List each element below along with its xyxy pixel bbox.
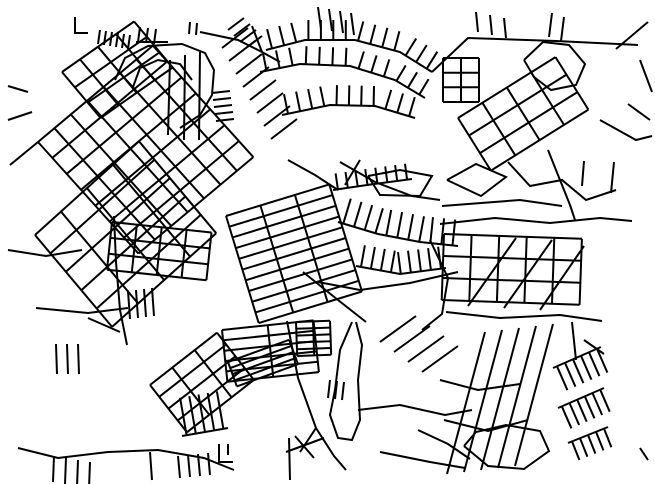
- grid-bc-rungs: [297, 341, 331, 342]
- grid-mr-blocks: [469, 235, 471, 301]
- comb-fan-top-2-tick: [371, 55, 376, 72]
- path-br-v: [572, 322, 576, 360]
- ticks-top-b: [138, 27, 140, 42]
- path-mr-v1: [582, 161, 584, 186]
- path-mr-lower-road: [446, 312, 602, 321]
- grid-bc-rungs: [297, 348, 331, 349]
- grid-w-lower: [87, 188, 164, 280]
- path-br-loop: [464, 425, 549, 469]
- comb-fan-top-3-tick: [296, 92, 300, 112]
- comb-fan-top-1-tick: [291, 23, 296, 42]
- grid-mr-blocks: [524, 237, 526, 303]
- ticks-bl-comb: [78, 344, 79, 374]
- path-park-road: [303, 272, 366, 322]
- grid-bc-ladder: [222, 330, 227, 382]
- ticks-nw-edgeband: [250, 80, 276, 100]
- ticks-tr-b: [549, 13, 552, 37]
- ticks-nw-edgeband: [243, 67, 269, 87]
- ticks-bl-bottom: [188, 455, 190, 477]
- grid-nw-upper: [80, 59, 119, 105]
- grid-nw-main: [104, 87, 204, 198]
- path-v-street-3: [199, 52, 200, 140]
- grid-bc-rungs: [330, 321, 331, 355]
- comb-fan-mid-1-tick: [419, 216, 424, 242]
- ticks-tm: [329, 9, 332, 31]
- path-l-road-1: [8, 250, 82, 256]
- street-map-svg: [0, 0, 655, 484]
- grid-nw-main: [67, 77, 182, 173]
- comb-br-1-tick: [573, 359, 583, 383]
- comb-fan-top-2-tick: [359, 52, 364, 69]
- comb-fan-top-3-tick: [320, 87, 324, 107]
- ticks-bl-branches: [89, 462, 90, 484]
- grid-central-ladder: [295, 195, 328, 302]
- grid-mr-blocks: [444, 234, 582, 239]
- ticks-ml-comb: [128, 291, 130, 319]
- path-L-mark: [75, 17, 88, 33]
- path-tr-edge-3: [600, 120, 652, 140]
- comb-fan-top-1-tick: [382, 28, 387, 47]
- grid-w-lower: [61, 212, 138, 304]
- comb-fan-top-2-tick: [319, 47, 320, 65]
- comb-fan-mid-1-tick: [430, 217, 433, 243]
- ticks-nw-diagband: [228, 18, 244, 30]
- comb-fan-top-3-tick: [397, 94, 403, 113]
- comb-fan-top-2-tick: [306, 46, 307, 64]
- ticks-tr-a: [476, 12, 478, 32]
- grid-w-lower: [35, 235, 112, 327]
- ticks-br-steep: [447, 332, 485, 474]
- path-bl-v: [150, 452, 152, 480]
- comb-br-1-tick: [557, 366, 567, 390]
- ticks-tm: [351, 13, 354, 35]
- path-l-edge-1: [8, 112, 32, 120]
- comb-br-2-tick: [570, 403, 580, 425]
- ticks-bl-branches: [53, 456, 54, 482]
- ticks-top-a: [104, 31, 106, 45]
- path-bc-x1: [286, 438, 324, 452]
- comb-fan-upper-tick: [336, 173, 338, 189]
- comb-fan-top-3: [282, 105, 415, 118]
- comb-fan-top-3-tick: [308, 89, 312, 109]
- ticks-top-c: [189, 22, 190, 34]
- grid-nw-main: [124, 141, 239, 237]
- ticks-tr-b: [561, 17, 564, 41]
- path-tr-edge-1: [640, 60, 652, 92]
- grid-bc-rungs: [313, 321, 314, 355]
- comb-fan-mid-1-tick: [354, 202, 362, 227]
- comb-fan-top-2-tick: [408, 72, 417, 87]
- comb-fan-top-3-tick: [385, 90, 391, 109]
- grid-central-ladder: [260, 206, 293, 313]
- ticks-nw-rungs: [214, 105, 232, 107]
- ticks-nw-diagband: [234, 24, 250, 36]
- ticks-bc-diags: [394, 326, 430, 352]
- grid-bc-rungs: [296, 321, 330, 322]
- ticks-ml-comb: [144, 289, 146, 317]
- comb-fan-top-1-tick: [358, 22, 363, 41]
- ticks-bl-bottom: [178, 456, 180, 478]
- comb-br-1-tick: [581, 356, 591, 380]
- comb-fan-top-2-tick: [332, 47, 333, 65]
- comb-fan-upper-tick: [395, 165, 397, 181]
- path-l-edge-3: [10, 142, 38, 165]
- ticks-tm: [318, 7, 321, 29]
- comb-fan-top-1-tick: [370, 25, 375, 44]
- comb-fan-mid-2-tick: [361, 245, 365, 267]
- path-mr-arterial: [440, 218, 632, 224]
- path-bc-balloon: [330, 322, 362, 440]
- grid-w-blocks: [182, 230, 187, 278]
- ticks-nw-rungs: [213, 98, 231, 100]
- comb-fan-top-2-tick: [289, 48, 293, 66]
- comb-fan-top-2-tick: [419, 79, 428, 95]
- comb-fan-mid-1-tick: [386, 210, 391, 236]
- ticks-top-c: [196, 23, 197, 35]
- path-mr-vconn: [548, 150, 575, 220]
- comb-fan-mid-2-tick: [428, 248, 431, 270]
- ticks-br-steep: [481, 328, 519, 470]
- ticks-bl-branches: [65, 458, 66, 484]
- comb-fan-mid-2-tick: [398, 252, 401, 274]
- ticks-bl-comb: [56, 344, 57, 374]
- ticks-ml-comb: [136, 290, 138, 318]
- grid-nw-main: [71, 115, 171, 226]
- path-mr-upper: [508, 162, 616, 200]
- ticks-nw-edgeband: [271, 119, 297, 139]
- path-tr-edge-2: [628, 104, 650, 120]
- ticks-top-a: [128, 35, 130, 49]
- ticks-tr-a: [504, 18, 506, 38]
- comb-fan-top-2: [260, 64, 425, 98]
- grid-mr-blocks: [443, 256, 581, 261]
- path-bc-curve-3: [418, 430, 470, 459]
- comb-bl-wavy-tick: [180, 398, 187, 435]
- comb-br-2-tick: [600, 390, 610, 412]
- comb-br-1-tick: [565, 363, 575, 387]
- comb-br-2-tick: [577, 400, 587, 422]
- ticks-ml-comb: [152, 288, 154, 316]
- comb-fan-top-2-tick: [384, 59, 389, 76]
- grid-central-ladder: [226, 216, 259, 323]
- path-bc-bracket: [219, 444, 233, 462]
- comb-br-2-tick: [585, 396, 595, 418]
- ticks-bl-bottom: [208, 453, 210, 475]
- grid-mr-blocks: [552, 238, 554, 304]
- comb-fan-top-1-tick: [394, 31, 399, 50]
- ticks-bl-branches: [77, 460, 78, 484]
- path-br-corner: [640, 448, 648, 460]
- ticks-bl-comb: [67, 344, 68, 374]
- path-mr-diag-1: [468, 238, 516, 306]
- ticks-nw-edgeband: [264, 106, 290, 126]
- comb-fan-mid-1-tick: [365, 205, 373, 230]
- ticks-top-a: [98, 30, 100, 44]
- path-bl-arterial: [18, 448, 234, 470]
- comb-fan-top-1-tick: [416, 45, 427, 62]
- grid-central-ladder: [329, 184, 362, 291]
- ticks-br-steep: [498, 326, 536, 468]
- comb-fan-top-1-tick: [406, 39, 417, 56]
- ticks-bc-ladder: [328, 380, 330, 398]
- comb-br-3-tick: [572, 441, 579, 460]
- street-map-figure: [0, 0, 655, 484]
- grid-mr-blocks: [442, 300, 580, 305]
- comb-fan-top-3-tick: [361, 86, 362, 106]
- ticks-bc-diags: [422, 346, 458, 372]
- comb-br-3-tick: [596, 432, 603, 451]
- ticks-bc-diags: [380, 316, 416, 342]
- comb-br-1-tick: [589, 352, 599, 376]
- comb-fan-mid-2-tick: [371, 247, 375, 269]
- ticks-top-a: [110, 32, 112, 46]
- comb-fan-top-2-tick: [346, 48, 347, 66]
- path-bc-fork: [300, 428, 316, 452]
- ticks-bc-ladder: [342, 382, 344, 400]
- grid-nw-main: [138, 157, 253, 253]
- comb-fan-mid-2-tick: [381, 249, 385, 271]
- path-tr-long: [432, 38, 638, 72]
- path-mr-diag-2: [504, 240, 552, 308]
- comb-fan-mid-1-tick: [397, 212, 402, 238]
- comb-fan-upper-tick: [385, 166, 387, 182]
- comb-fan-mid-1-tick: [408, 214, 413, 240]
- comb-br-2-tick: [593, 393, 603, 415]
- comb-fan-mid-2-tick: [408, 251, 411, 273]
- comb-br-3-tick: [604, 429, 611, 448]
- comb-fan-top-1-tick: [267, 29, 272, 48]
- comb-fan-mid-2-tick: [391, 251, 395, 273]
- ticks-top-a: [122, 34, 124, 48]
- grid-bc-ladder: [268, 325, 274, 377]
- comb-fan-top-3-tick: [337, 85, 338, 105]
- grid-bc-rungs: [296, 328, 330, 329]
- comb-fan-top-1-tick: [279, 26, 284, 45]
- comb-fan-top-3-tick: [409, 97, 415, 116]
- path-bc-curve-1: [358, 405, 472, 415]
- comb-bl-wavy-tick: [217, 391, 224, 428]
- grid-nw-upper: [62, 22, 134, 73]
- ticks-br-steep: [515, 324, 553, 466]
- ticks-nw-rungs: [212, 91, 230, 93]
- path-l-edge-2: [8, 86, 28, 92]
- ticks-top-b: [146, 28, 148, 43]
- comb-fan-mid-1-tick: [343, 199, 351, 224]
- comb-fan-top-2-tick: [263, 53, 267, 71]
- path-v-street-2: [184, 55, 185, 140]
- grid-nw-main: [38, 142, 138, 254]
- grid-bc-rungs: [297, 355, 331, 356]
- ticks-nw-edgeband: [236, 54, 262, 74]
- grid-bc-rungs: [296, 322, 297, 356]
- path-mr-quad: [447, 164, 506, 196]
- path-l-road-2: [36, 308, 128, 313]
- path-mr-v2: [611, 162, 614, 193]
- path-bc-vbottom: [289, 438, 290, 480]
- comb-fan-mid-2-tick: [418, 250, 421, 272]
- path-mr-road-2: [442, 200, 562, 206]
- ticks-bc-diags: [408, 336, 444, 362]
- comb-br-3-tick: [588, 435, 595, 454]
- comb-br-2-tick: [562, 406, 572, 428]
- ticks-nw-edgeband: [257, 93, 283, 113]
- ticks-tr-a: [490, 15, 492, 35]
- grid-bc-rungs: [297, 334, 331, 335]
- grid-mr-blocks: [497, 236, 499, 302]
- comb-fan-top-2-tick: [397, 66, 406, 81]
- ticks-tm: [340, 11, 343, 33]
- path-c-conn-1: [288, 160, 338, 190]
- comb-fan-mid-1-tick: [375, 208, 383, 233]
- comb-br-3-tick: [580, 438, 587, 457]
- ticks-nw-rungs: [215, 112, 233, 114]
- comb-fan-top-1-tick: [427, 52, 438, 69]
- path-mr-diag-3: [540, 246, 584, 310]
- path-br-conn-1: [440, 380, 520, 390]
